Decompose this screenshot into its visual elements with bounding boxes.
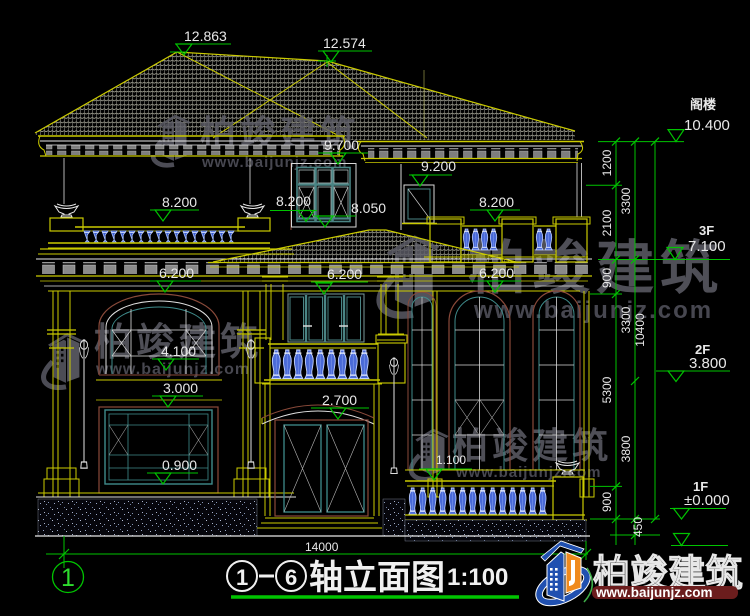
svg-text:2100: 2100 [600,209,614,236]
svg-text:6.200: 6.200 [479,265,514,281]
svg-text:www.baijunjz.com: www.baijunjz.com [473,297,713,324]
svg-text:1: 1 [61,564,75,592]
svg-text:7.100: 7.100 [688,238,726,255]
svg-text:3F: 3F [699,223,714,238]
svg-text:12.574: 12.574 [323,35,366,51]
svg-text:2.700: 2.700 [322,392,357,408]
svg-text:1.100: 1.100 [436,453,466,467]
svg-text:8.200: 8.200 [276,193,311,209]
svg-text:1:100: 1:100 [447,564,508,591]
svg-text:14000: 14000 [305,540,339,554]
svg-text:900: 900 [600,492,614,512]
svg-text:3.800: 3.800 [689,355,727,372]
svg-text:3300: 3300 [619,187,633,214]
svg-text:3300: 3300 [619,306,633,333]
svg-text:轴立面图: 轴立面图 [309,559,445,597]
svg-text:10.400: 10.400 [684,117,730,134]
svg-text:0.900: 0.900 [162,457,197,473]
svg-text:5300: 5300 [600,376,614,403]
svg-text:www.baijunjz.com: www.baijunjz.com [595,585,713,600]
svg-text:8.200: 8.200 [162,194,197,210]
svg-text:8.050: 8.050 [351,200,386,216]
svg-text:9.700: 9.700 [324,137,359,153]
svg-text:450: 450 [631,517,645,537]
svg-text:3800: 3800 [619,435,633,462]
svg-text:12.863: 12.863 [184,28,227,44]
svg-text:900: 900 [600,268,614,288]
svg-text:阁楼: 阁楼 [690,97,716,112]
svg-text:9.200: 9.200 [421,158,456,174]
svg-text:8.200: 8.200 [479,194,514,210]
svg-text:±0.000: ±0.000 [684,492,730,509]
svg-text:10400: 10400 [633,313,647,347]
svg-text:1200: 1200 [600,149,614,176]
svg-text:3.000: 3.000 [163,380,198,396]
svg-text:6.200: 6.200 [159,265,194,281]
svg-text:6: 6 [285,565,297,590]
svg-text:4.100: 4.100 [161,343,196,359]
svg-text:1: 1 [236,565,248,590]
svg-text:6.200: 6.200 [327,266,362,282]
